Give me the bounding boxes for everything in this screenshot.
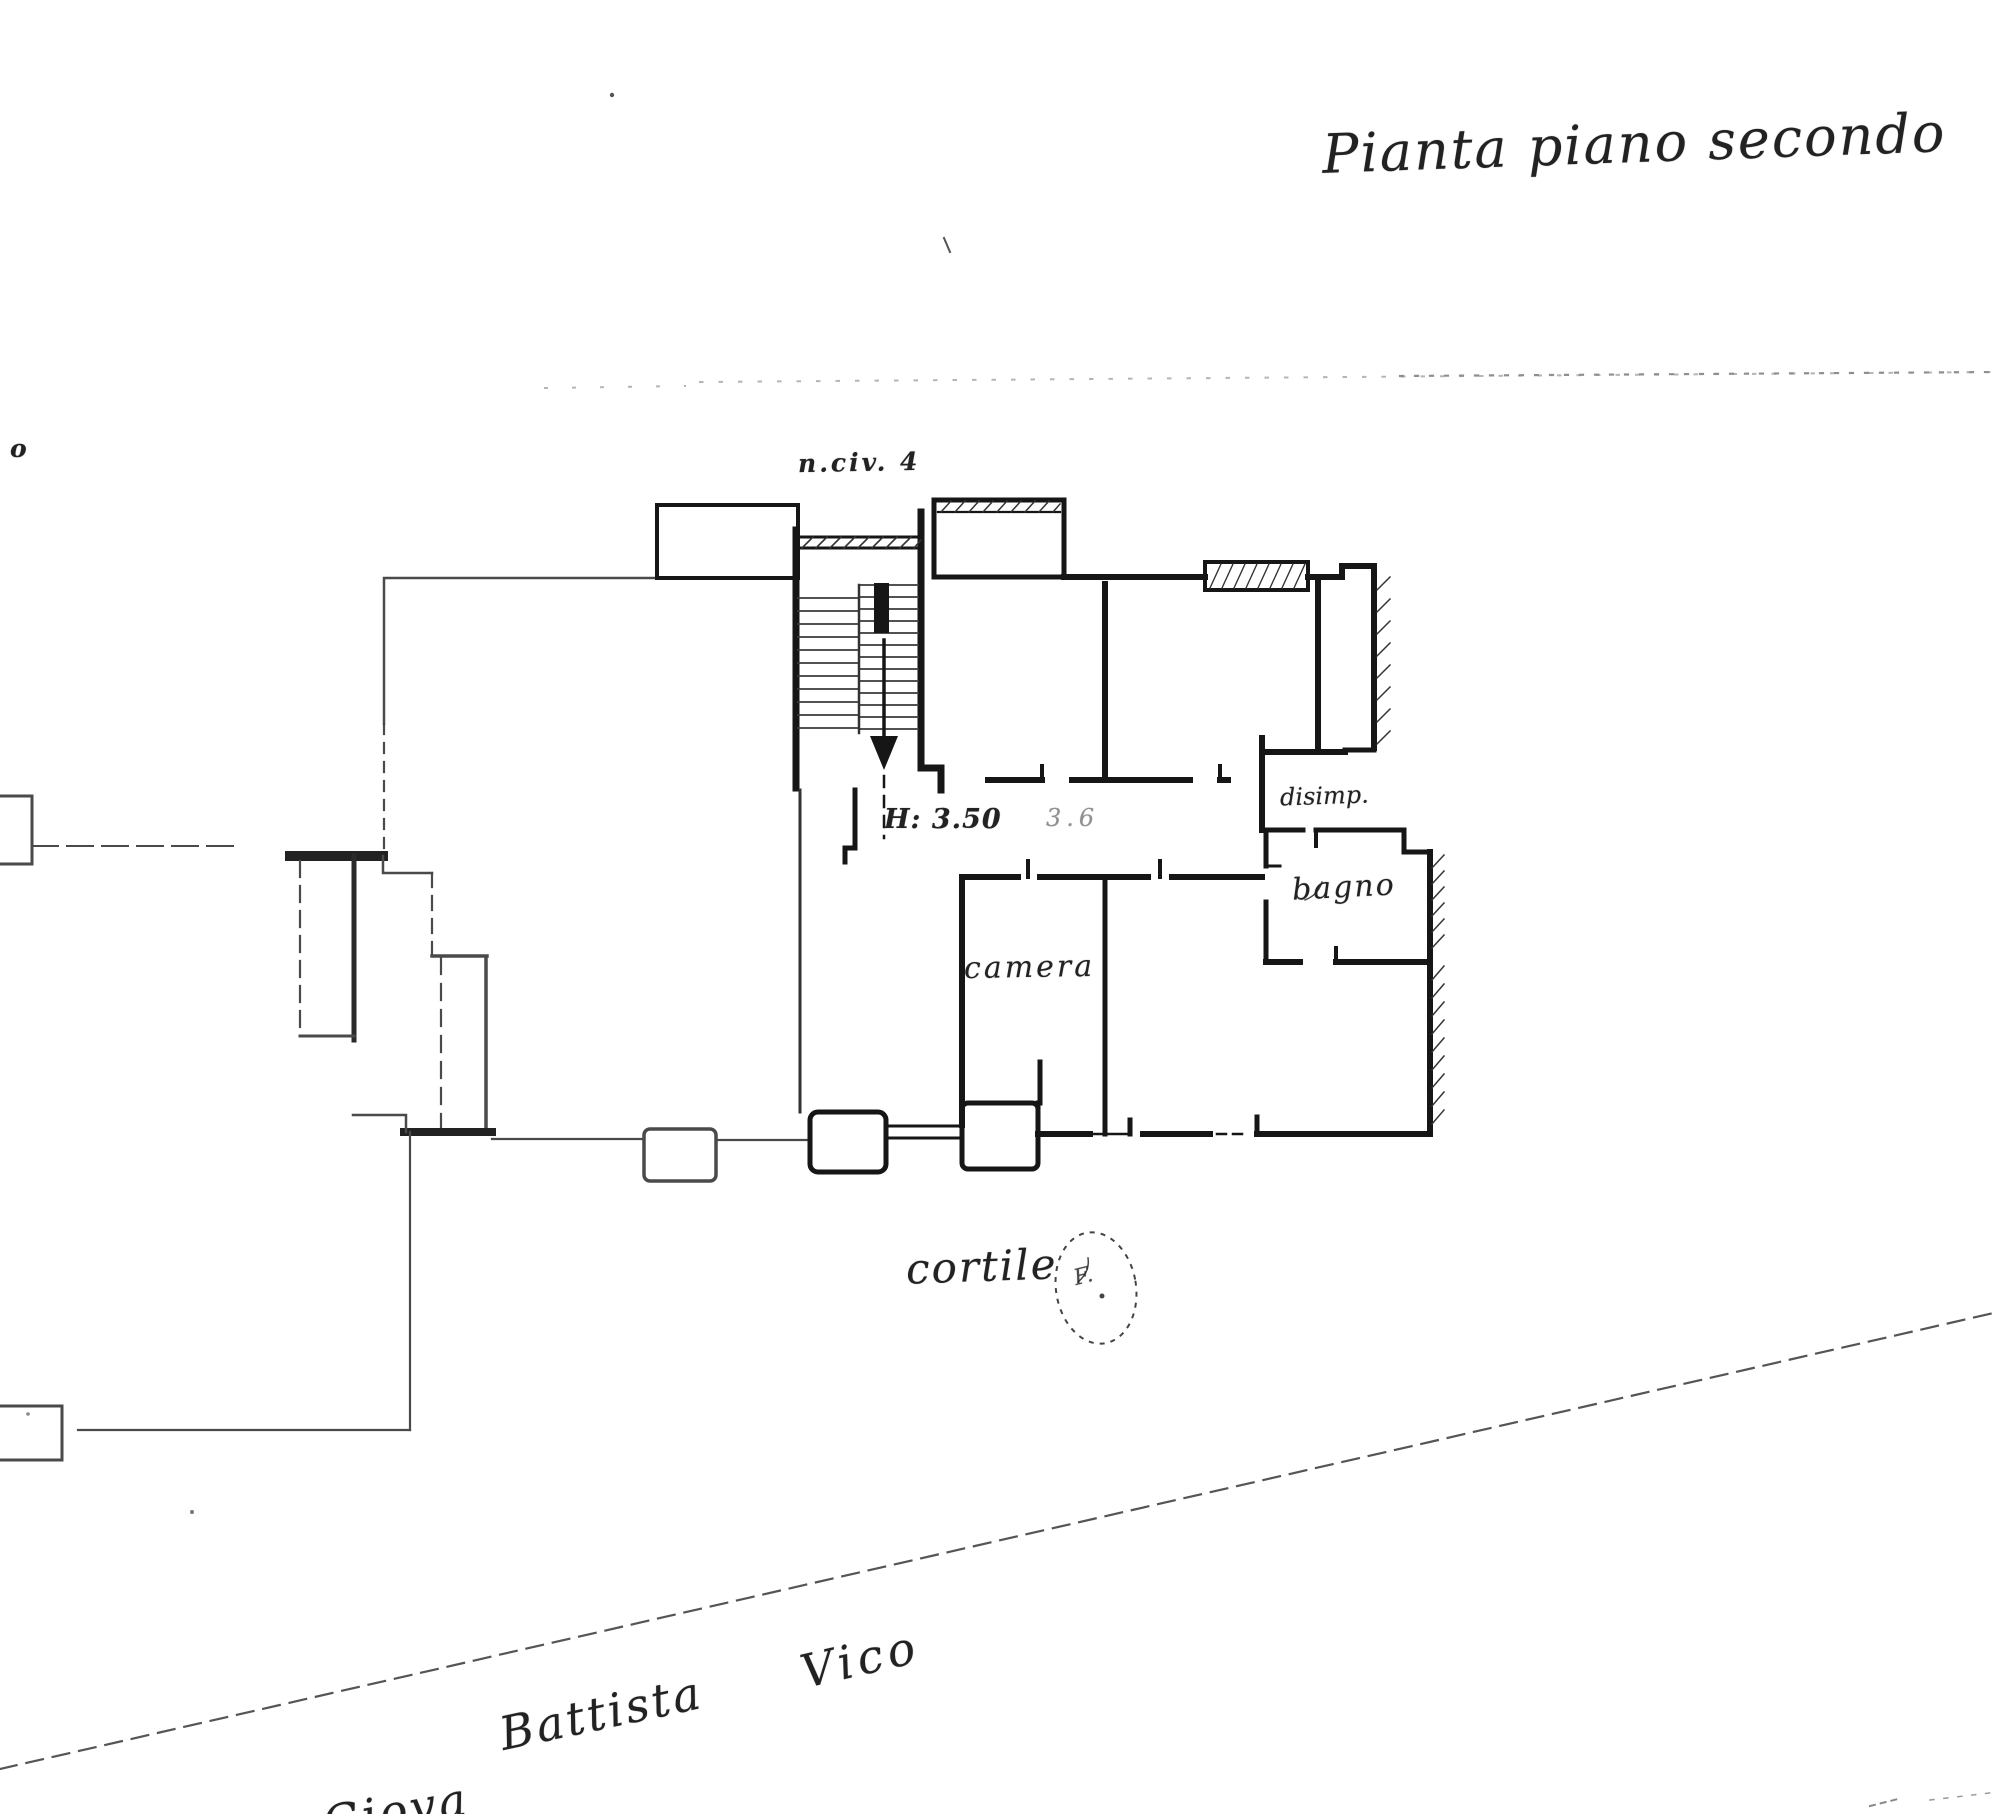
stair-landing-rect <box>657 505 798 578</box>
left-wing-outline <box>0 578 810 1460</box>
apartment-walls <box>800 500 1444 1172</box>
stair-top-hatch <box>802 537 921 548</box>
courtyard-label: cortile <box>905 1239 1058 1293</box>
faint-measure-note: 3.6 <box>1046 804 1099 832</box>
stair-number-label: n.civ. 4 <box>798 447 921 478</box>
courtyard-ellipse <box>1048 1226 1145 1349</box>
dotted-reference-line <box>545 372 1995 388</box>
floor-plan-drawing <box>0 0 2000 1814</box>
room-label-camera: camera <box>964 949 1096 986</box>
left-edge-text-fragment: o <box>10 434 33 463</box>
balcony-rect-bottom-right <box>962 1103 1038 1169</box>
room-label-disimpegno: disimp. <box>1280 780 1370 811</box>
ceiling-height-note: H: 3.50 <box>884 804 1002 835</box>
street-line <box>0 1312 1998 1769</box>
room-label-bagno: bagno <box>1291 867 1396 907</box>
scanned-floor-plan-page: Pianta piano secondo n.civ. 4 H: 3.50 3.… <box>0 0 2000 1814</box>
balcony-rect-bottom-left <box>810 1112 886 1172</box>
balcony-rect-left <box>644 1129 716 1181</box>
